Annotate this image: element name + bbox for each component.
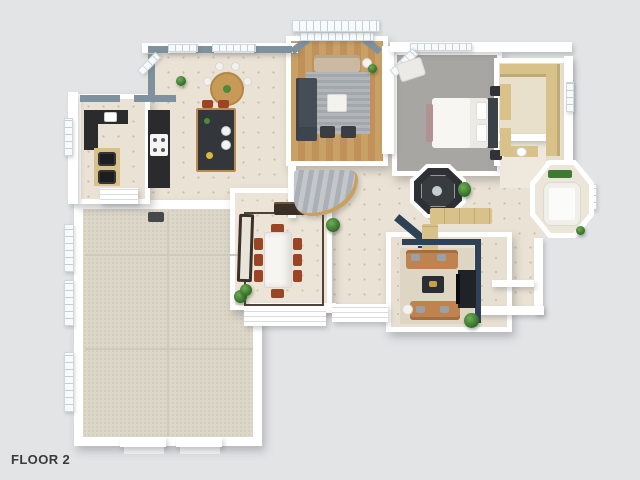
bedroom-window bbox=[410, 43, 472, 51]
laundry-counter-2 bbox=[84, 124, 98, 150]
island-stool-1 bbox=[202, 100, 213, 108]
floor-label: FLOOR 2 bbox=[11, 452, 70, 467]
hall-plant bbox=[240, 284, 252, 296]
island-sink-2 bbox=[221, 140, 231, 150]
dining-chair-left-3 bbox=[254, 270, 263, 282]
bed-pillow-2 bbox=[476, 124, 487, 142]
garage-entry-steps bbox=[100, 188, 138, 204]
burner-4 bbox=[161, 148, 165, 152]
laundry-accent-wall-2 bbox=[134, 95, 176, 102]
dining-chair-right-2 bbox=[293, 254, 302, 266]
sofa1-pillow-1 bbox=[411, 254, 420, 261]
family-sectional bbox=[296, 78, 317, 141]
sofa2-pillow-1 bbox=[416, 306, 425, 313]
kitchen-accent-wall-3 bbox=[254, 46, 292, 53]
bed-pillow-1 bbox=[476, 102, 487, 120]
closet-shelf-right bbox=[546, 64, 560, 156]
kitchen-accent-wall bbox=[148, 46, 168, 53]
living-plant bbox=[464, 313, 479, 328]
garage-floor-joint-h2 bbox=[85, 348, 253, 350]
coffee-table-tray bbox=[429, 281, 437, 287]
kitchen-range bbox=[150, 134, 168, 156]
island-sink-1 bbox=[221, 126, 231, 136]
laundry-window bbox=[64, 118, 73, 156]
dining-chair-right-3 bbox=[293, 270, 302, 282]
burner-2 bbox=[161, 138, 165, 142]
southeast-bottom-wall bbox=[478, 306, 544, 315]
garage-door-1 bbox=[120, 437, 166, 447]
shower-drain bbox=[432, 186, 442, 196]
foyer-entry-steps bbox=[332, 304, 388, 322]
dining-chair-left-2 bbox=[254, 254, 263, 266]
driveway-mark-2 bbox=[180, 447, 220, 454]
closet-window bbox=[566, 82, 574, 112]
family-bay-window bbox=[300, 32, 374, 41]
tv-console bbox=[458, 270, 476, 308]
family-ottoman-2 bbox=[341, 126, 356, 138]
garage-window-1 bbox=[64, 224, 74, 272]
shower-plant bbox=[458, 182, 471, 197]
sofa2-pillow-2 bbox=[440, 306, 449, 313]
dining-chair-left-1 bbox=[254, 238, 263, 250]
stair-plant bbox=[326, 218, 340, 232]
kitchen-window-2 bbox=[212, 44, 256, 52]
washer bbox=[98, 152, 116, 166]
kitchen-window-1 bbox=[168, 44, 198, 52]
laundry-sink bbox=[104, 112, 117, 122]
dining-chair-foot bbox=[271, 289, 284, 298]
living-side-table-lamp bbox=[402, 304, 413, 315]
island-decor-bowl bbox=[206, 152, 213, 159]
burner-3 bbox=[153, 148, 157, 152]
island-decor-plant bbox=[204, 118, 210, 124]
tv-screen bbox=[456, 274, 460, 304]
deck-railing bbox=[292, 20, 380, 32]
dining-table bbox=[264, 232, 292, 288]
dining-chair-right-1 bbox=[293, 238, 302, 250]
family-sofa bbox=[314, 55, 360, 72]
family-bedroom-divider-wall bbox=[382, 46, 394, 154]
garage-wall-panel bbox=[148, 212, 164, 222]
kitchen-island bbox=[196, 108, 236, 172]
dining-porch-steps bbox=[244, 310, 326, 326]
kitchen-plant bbox=[176, 76, 186, 86]
nook-bench-horizontal bbox=[430, 208, 492, 224]
breakfast-centerpiece bbox=[223, 85, 231, 93]
leaning-artwork-frame bbox=[237, 214, 254, 282]
breakfast-chair-1 bbox=[215, 62, 224, 71]
breakfast-chair-4 bbox=[243, 77, 252, 86]
bath-plant bbox=[576, 226, 585, 235]
living-navy-wall-top bbox=[402, 239, 478, 245]
garage-floor-joint-h1 bbox=[85, 254, 253, 256]
bath-mat bbox=[548, 170, 572, 178]
family-ottoman-1 bbox=[320, 126, 335, 138]
burner-1 bbox=[153, 138, 157, 142]
soaking-tub bbox=[543, 182, 581, 226]
garage-window-3 bbox=[64, 352, 74, 412]
breakfast-chair-2 bbox=[231, 62, 240, 71]
garage-window-2 bbox=[64, 280, 74, 326]
driveway-mark-1 bbox=[124, 447, 164, 454]
bath-sink bbox=[516, 147, 527, 157]
family-coffee-table bbox=[327, 94, 347, 112]
headboard bbox=[488, 98, 498, 148]
se-closet-partition bbox=[492, 280, 534, 287]
bed-bench bbox=[426, 104, 433, 142]
garage-floor-joint-vertical bbox=[167, 212, 169, 436]
garage-door-2 bbox=[176, 437, 222, 447]
closet-shelf-left-1 bbox=[500, 84, 511, 120]
floorplan-canvas: FLOOR 2 bbox=[0, 0, 640, 480]
southeast-right-wall bbox=[534, 238, 543, 314]
laundry-accent-wall bbox=[80, 95, 120, 102]
sofa1-pillow-2 bbox=[437, 254, 446, 261]
dryer bbox=[98, 170, 116, 184]
island-stool-2 bbox=[218, 100, 229, 108]
family-plant bbox=[368, 64, 377, 73]
